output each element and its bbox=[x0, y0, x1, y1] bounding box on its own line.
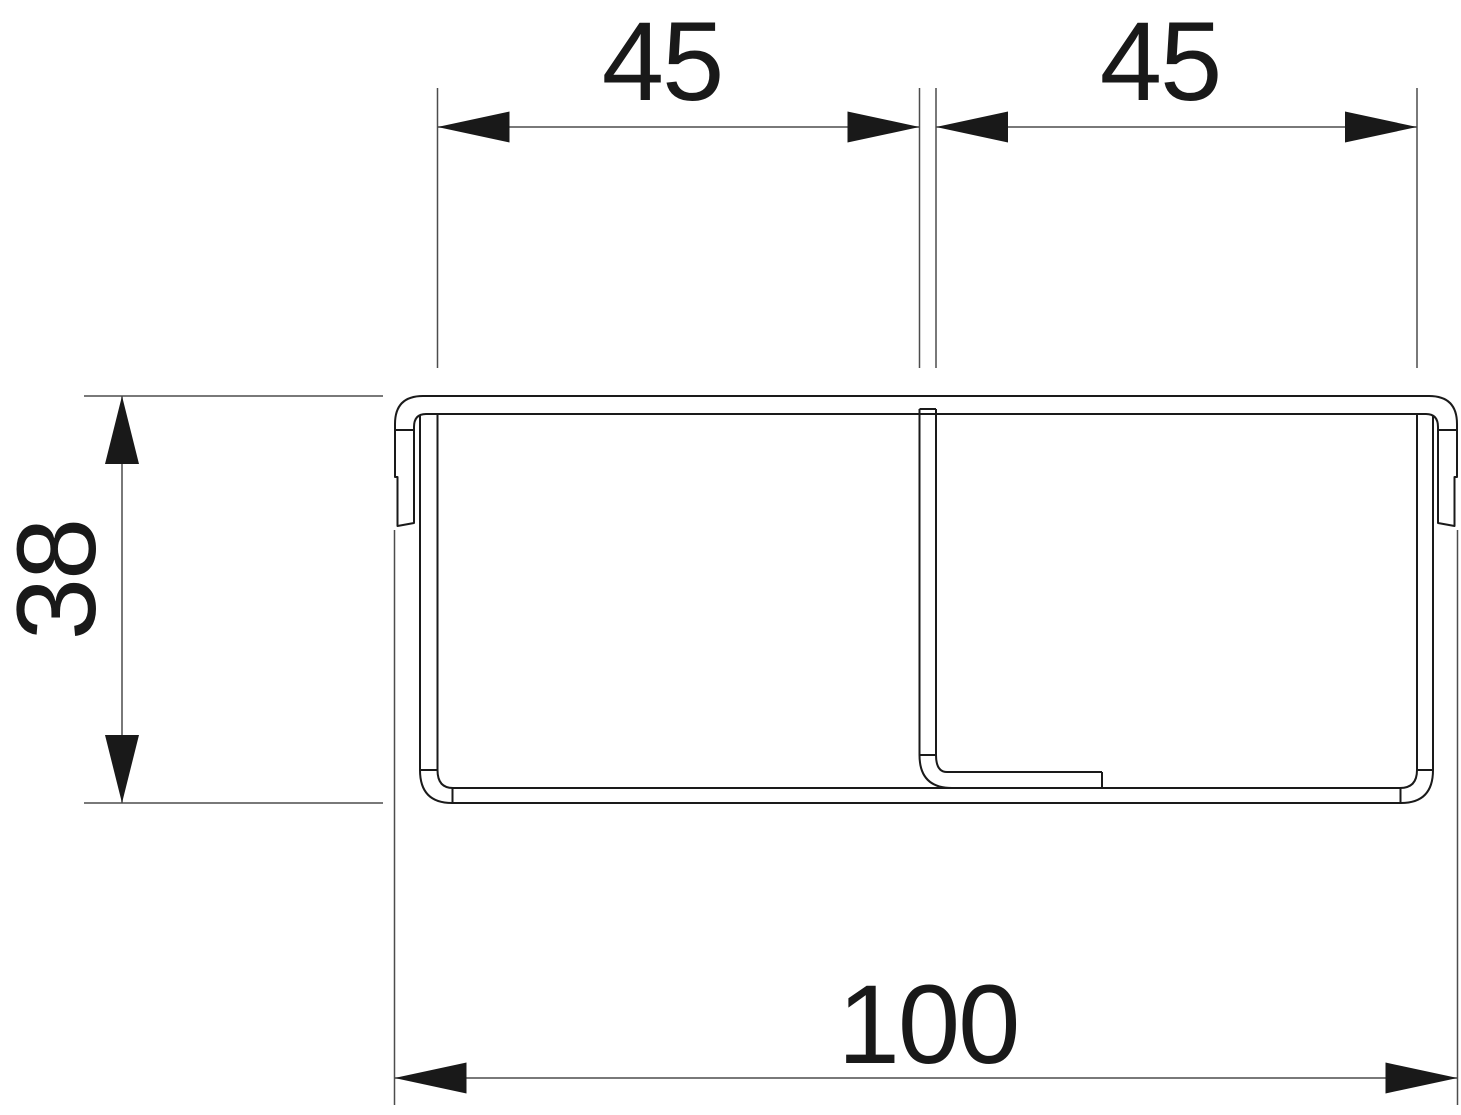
arrowhead-38-top bbox=[105, 396, 139, 464]
dimension-label-right-compartment: 45 bbox=[1100, 0, 1221, 124]
dimension-extension-lines bbox=[84, 88, 1458, 1105]
right-hook-outline bbox=[1426, 396, 1457, 526]
arrowhead-100-left bbox=[395, 1063, 467, 1094]
divider-foot-inner-arc bbox=[936, 755, 947, 772]
profile-outline bbox=[395, 396, 1457, 803]
dimension-label-height: 38 bbox=[0, 520, 119, 641]
arrowhead-100-right bbox=[1386, 1063, 1458, 1094]
bottom-outer-line bbox=[420, 770, 1433, 803]
dimension-label-overall-width: 100 bbox=[838, 962, 1019, 1087]
dimension-labels: 45 45 38 100 bbox=[0, 0, 1220, 1087]
left-hook-outline bbox=[395, 396, 426, 526]
arrowhead-left-45-right bbox=[848, 112, 920, 143]
arrowhead-38-bottom bbox=[105, 735, 139, 803]
cross-section-drawing: 45 45 38 100 bbox=[0, 0, 1461, 1115]
dimension-arrowheads bbox=[105, 112, 1458, 1094]
technical-drawing-canvas: 45 45 38 100 bbox=[0, 0, 1461, 1115]
arrowhead-right-45-right bbox=[1345, 112, 1417, 143]
arrowhead-right-45-left bbox=[936, 112, 1008, 143]
arrowhead-left-45-left bbox=[438, 112, 510, 143]
dimension-lines bbox=[122, 127, 1458, 1078]
dimension-label-left-compartment: 45 bbox=[602, 0, 723, 124]
